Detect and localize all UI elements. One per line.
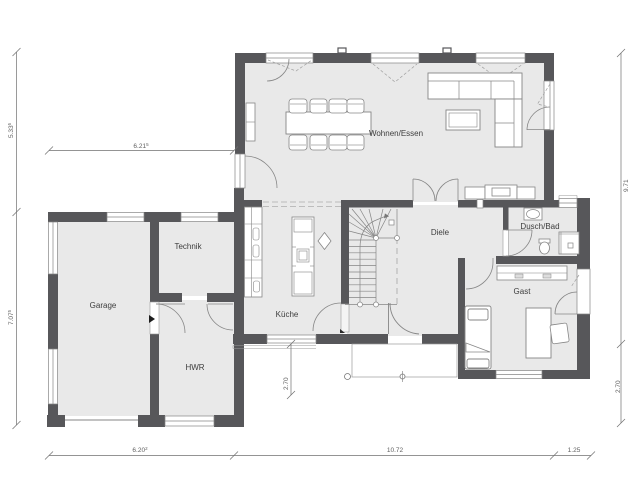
svg-text:Küche: Küche bbox=[276, 310, 299, 319]
svg-text:9.71: 9.71 bbox=[623, 179, 630, 192]
svg-text:Gast: Gast bbox=[514, 287, 532, 296]
svg-text:Diele: Diele bbox=[431, 228, 450, 237]
svg-text:Dusch/Bad: Dusch/Bad bbox=[520, 222, 559, 231]
svg-text:1.25: 1.25 bbox=[568, 447, 581, 454]
svg-text:10.72: 10.72 bbox=[387, 447, 404, 454]
svg-text:Garage: Garage bbox=[90, 301, 117, 310]
svg-text:2.70: 2.70 bbox=[615, 380, 622, 393]
svg-text:2.70: 2.70 bbox=[283, 377, 290, 390]
svg-text:HWR: HWR bbox=[185, 363, 204, 372]
svg-text:Wohnen/Essen: Wohnen/Essen bbox=[369, 129, 423, 138]
svg-text:Technik: Technik bbox=[174, 242, 202, 251]
